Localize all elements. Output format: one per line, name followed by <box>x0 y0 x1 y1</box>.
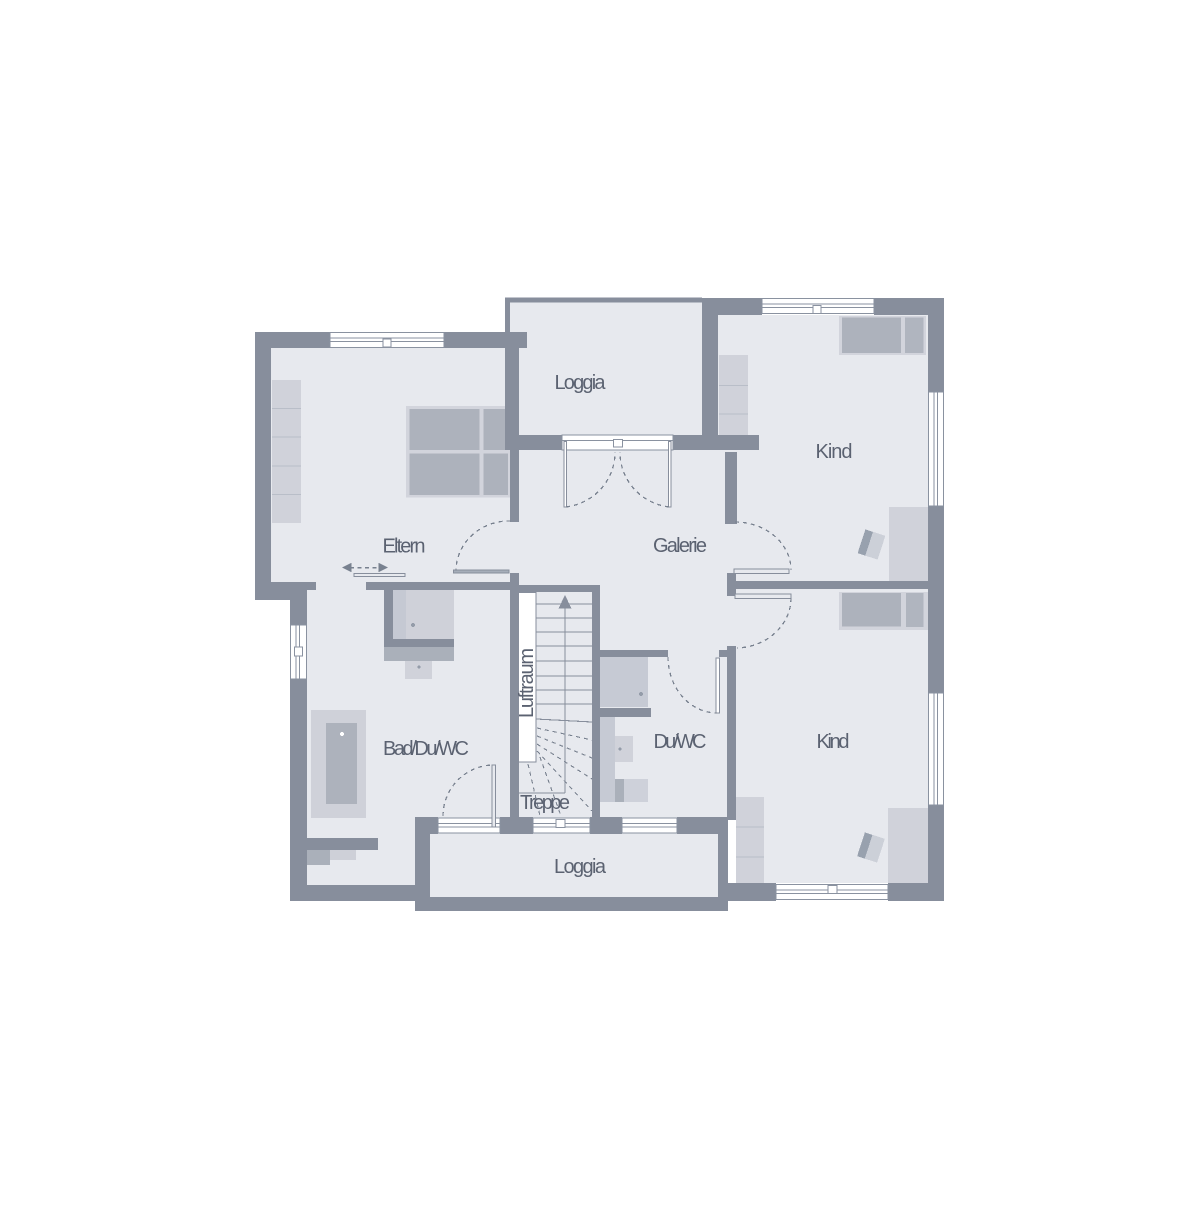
svg-text:Galerie: Galerie <box>653 535 707 557</box>
svg-text:Kind: Kind <box>817 731 850 753</box>
svg-text:Kind: Kind <box>816 441 853 463</box>
svg-text:Du/WC: Du/WC <box>654 731 707 753</box>
svg-text:Loggia: Loggia <box>555 372 607 394</box>
svg-text:Eltern: Eltern <box>383 536 426 558</box>
svg-text:Treppe: Treppe <box>520 792 570 814</box>
svg-text:Bad/Du/WC: Bad/Du/WC <box>383 738 469 760</box>
svg-text:Loggia: Loggia <box>554 856 607 878</box>
svg-text:Luftraum: Luftraum <box>516 648 538 718</box>
